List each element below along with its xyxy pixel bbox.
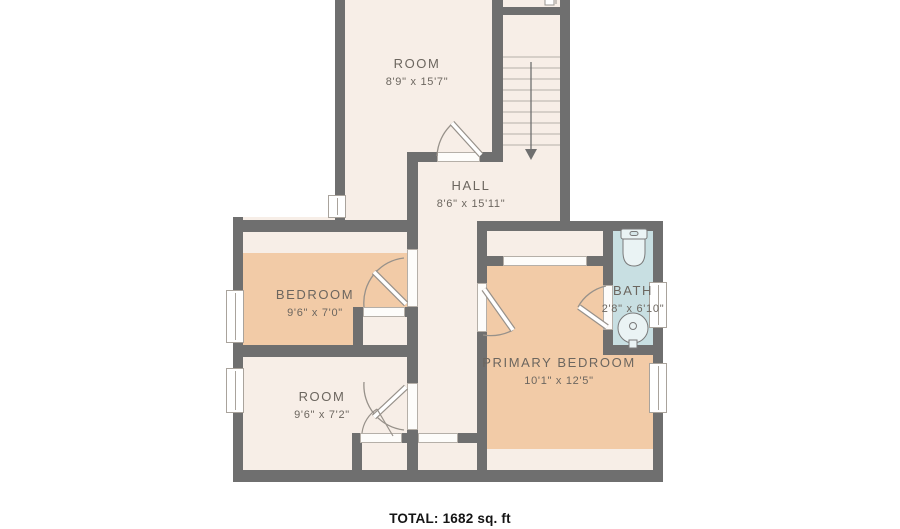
sink-icon [618,313,648,348]
room-dims: 9'6" x 7'2" [294,409,350,421]
room-dims: 2'8" x 6'10" [602,303,665,315]
total-area-label: TOTAL: 1682 sq. ft [389,511,511,526]
room-label-primary: PRIMARY BEDROOM 10'1" x 12'5" [482,355,636,387]
room-label-hall: HALL 8'6" x 15'11" [437,178,506,210]
room-label-lower: ROOM 9'6" x 7'2" [294,389,350,421]
symbol-overlay [0,0,900,529]
door-primary-bedroom [483,289,513,336]
room-name: HALL [437,178,506,193]
room-name: ROOM [386,56,449,71]
door-bedroom [364,258,406,307]
room-label-bedroom: BEDROOM 9'6" x 7'0" [276,287,354,319]
room-name: ROOM [294,389,350,404]
room-dims: 8'6" x 15'11" [437,198,506,210]
floorplan-canvas: ROOM 8'9" x 15'7" HALL 8'6" x 15'11" BED… [0,0,900,529]
toilet-icon [621,229,647,266]
room-label-bath: BATH 2'8" x 6'10" [602,283,665,315]
room-name: BEDROOM [276,287,354,302]
door-room-top [437,123,481,156]
room-dims: 9'6" x 7'0" [276,307,354,319]
room-dims: 8'9" x 15'7" [386,76,449,88]
room-name: BATH [602,283,665,298]
room-dims: 10'1" x 12'5" [482,375,636,387]
top-sliver-fixture [545,0,556,5]
room-name: PRIMARY BEDROOM [482,355,636,370]
room-label-top: ROOM 8'9" x 15'7" [386,56,449,88]
